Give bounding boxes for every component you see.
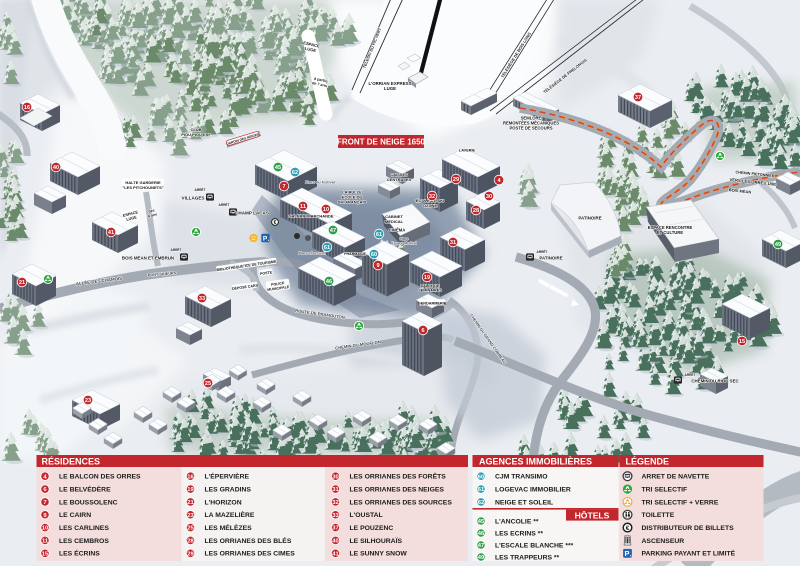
svg-text:LE SUNNY SNOW: LE SUNNY SNOW xyxy=(350,551,408,558)
svg-text:16: 16 xyxy=(24,105,30,111)
svg-text:45: 45 xyxy=(275,165,281,171)
svg-text:47: 47 xyxy=(330,228,336,234)
svg-text:LES ORRIANES DES SOURCES: LES ORRIANES DES SOURCES xyxy=(350,499,453,506)
svg-text:23: 23 xyxy=(85,398,91,404)
svg-text:Place du festival: Place du festival xyxy=(305,180,335,184)
svg-text:LÉGENDE: LÉGENDE xyxy=(626,456,670,466)
svg-text:LAVERIE: LAVERIE xyxy=(459,148,476,152)
svg-text:16: 16 xyxy=(187,474,194,480)
svg-text:SALLE DE: SALLE DE xyxy=(421,284,440,288)
svg-text:HÔTELS: HÔTELS xyxy=(575,509,610,520)
svg-text:60: 60 xyxy=(478,474,484,480)
svg-text:LE SILHOURAÏS: LE SILHOURAÏS xyxy=(350,537,403,545)
svg-text:47: 47 xyxy=(478,543,484,549)
svg-text:61: 61 xyxy=(376,232,382,238)
svg-text:CENTRALES: CENTRALES xyxy=(387,177,412,182)
svg-text:15: 15 xyxy=(739,339,745,345)
svg-text:30: 30 xyxy=(486,194,492,200)
svg-text:LES GRADINS: LES GRADINS xyxy=(205,486,252,493)
svg-text:31: 31 xyxy=(450,240,456,246)
svg-text:ET CULTURE: ET CULTURE xyxy=(657,230,683,235)
svg-text:ASCENSEUR: ASCENSEUR xyxy=(642,538,685,545)
svg-text:LES TRAPPEURS **: LES TRAPPEURS ** xyxy=(495,554,560,561)
svg-text:MÉDICAL: MÉDICAL xyxy=(385,219,404,224)
svg-text:11: 11 xyxy=(42,539,49,545)
svg-text:33: 33 xyxy=(199,296,205,302)
svg-text:"LES PITCHOUNETS": "LES PITCHOUNETS" xyxy=(122,185,163,190)
svg-text:ARRET DE NAVETTE: ARRET DE NAVETTE xyxy=(642,474,710,481)
svg-text:FRONT DE NEIGE 1650: FRONT DE NEIGE 1650 xyxy=(337,138,426,147)
svg-text:46: 46 xyxy=(326,279,332,285)
svg-text:LES MÉLÈZES: LES MÉLÈZES xyxy=(205,523,253,532)
svg-text:SÉMINAIRES: SÉMINAIRES xyxy=(418,288,442,293)
svg-text:CINÉMA: CINÉMA xyxy=(389,227,406,232)
svg-text:31: 31 xyxy=(332,487,339,493)
svg-text:LE BOUSSOLENC: LE BOUSSOLENC xyxy=(59,499,118,506)
svg-text:L'ORRIAN EXPRESS: L'ORRIAN EXPRESS xyxy=(368,81,411,86)
svg-text:49: 49 xyxy=(478,555,485,561)
svg-text:TRI SELECTIF: TRI SELECTIF xyxy=(642,486,688,493)
svg-text:10: 10 xyxy=(323,207,329,213)
svg-text:BOIS MEAN ET EMBRUN: BOIS MEAN ET EMBRUN xyxy=(122,255,174,260)
svg-text:37: 37 xyxy=(635,95,641,101)
svg-text:28: 28 xyxy=(473,208,479,214)
svg-text:ARRÊT: ARRÊT xyxy=(195,187,206,192)
svg-text:LES ECRINS **: LES ECRINS ** xyxy=(495,530,543,537)
svg-text:19: 19 xyxy=(187,487,194,493)
svg-text:€: € xyxy=(274,220,277,226)
svg-text:Place d'accueil: Place d'accueil xyxy=(298,251,325,255)
svg-text:LUGE: LUGE xyxy=(384,86,396,91)
svg-text:LES ORRIANES DES NEIGES: LES ORRIANES DES NEIGES xyxy=(350,486,445,493)
svg-text:L'ÉPERVIÈRE: L'ÉPERVIÈRE xyxy=(205,472,250,481)
svg-text:40: 40 xyxy=(53,165,59,171)
svg-text:AGENCES IMMOBILIÈRES: AGENCES IMMOBILIÈRES xyxy=(479,456,592,466)
svg-text:CHAMP LACAS: CHAMP LACAS xyxy=(235,211,269,216)
svg-text:OZONE: OZONE xyxy=(423,203,438,208)
svg-text:21: 21 xyxy=(19,280,25,286)
svg-text:P: P xyxy=(263,235,268,242)
svg-text:RÉSIDENCES: RÉSIDENCES xyxy=(42,456,101,466)
svg-text:41: 41 xyxy=(108,230,114,236)
svg-text:GALERIE MARCHANDE: GALERIE MARCHANDE xyxy=(288,213,333,218)
svg-text:L'ANCOLIE **: L'ANCOLIE ** xyxy=(495,518,539,525)
svg-text:32: 32 xyxy=(429,194,435,200)
svg-text:32: 32 xyxy=(332,500,338,506)
svg-text:TOILETTE: TOILETTE xyxy=(642,512,675,519)
svg-text:PARKING PAYANT ET LIMITÉ: PARKING PAYANT ET LIMITÉ xyxy=(642,549,736,558)
svg-text:6: 6 xyxy=(421,328,424,334)
svg-text:10: 10 xyxy=(42,526,48,532)
svg-text:15: 15 xyxy=(42,551,49,557)
svg-text:7: 7 xyxy=(43,500,46,506)
svg-text:62: 62 xyxy=(478,500,484,506)
svg-text:33: 33 xyxy=(332,513,339,519)
svg-text:LES CARLINES: LES CARLINES xyxy=(59,525,109,532)
svg-text:46: 46 xyxy=(478,531,485,537)
svg-text:TRI SELECTIF + VERRE: TRI SELECTIF + VERRE xyxy=(642,499,719,506)
svg-text:CHEMIN DU RIOU SEC: CHEMIN DU RIOU SEC xyxy=(691,378,739,383)
svg-text:11: 11 xyxy=(300,204,306,210)
svg-text:LES ORRIANES DES FORÊTS: LES ORRIANES DES FORÊTS xyxy=(350,472,447,481)
svg-text:L'HORIZON: L'HORIZON xyxy=(205,499,242,506)
svg-text:Espace Medical: Espace Medical xyxy=(391,241,416,245)
svg-text:49: 49 xyxy=(775,242,781,248)
svg-text:21: 21 xyxy=(187,500,194,506)
svg-text:€: € xyxy=(626,525,630,532)
svg-text:19: 19 xyxy=(424,275,430,281)
svg-text:23: 23 xyxy=(187,513,194,519)
svg-text:62: 62 xyxy=(292,170,298,176)
svg-text:PATINOIRE: PATINOIRE xyxy=(578,215,601,220)
svg-text:VILLAGES: VILLAGES xyxy=(182,196,205,201)
svg-text:LE POUZENC: LE POUZENC xyxy=(350,525,394,532)
svg-text:NEIGE ET SOLEIL: NEIGE ET SOLEIL xyxy=(495,499,553,506)
svg-text:LA MAZELIÈRE: LA MAZELIÈRE xyxy=(205,510,255,519)
svg-text:GENDARMERIE: GENDARMERIE xyxy=(418,301,447,305)
svg-text:LOGEVAC IMMOBILIER: LOGEVAC IMMOBILIER xyxy=(495,486,571,493)
svg-text:SKI FRANÇAIS: SKI FRANÇAIS xyxy=(338,199,367,204)
svg-text:7: 7 xyxy=(282,184,285,190)
svg-text:POSTE DE SECOURS: POSTE DE SECOURS xyxy=(509,126,552,131)
svg-text:60: 60 xyxy=(371,252,377,258)
svg-text:45: 45 xyxy=(478,519,485,525)
svg-text:29: 29 xyxy=(453,177,459,183)
svg-text:PHARMACIE: PHARMACIE xyxy=(344,252,366,256)
svg-text:L'ESCALE BLANCHE ***: L'ESCALE BLANCHE *** xyxy=(495,542,574,549)
svg-text:CJM TRANSIMO: CJM TRANSIMO xyxy=(495,474,548,481)
svg-text:LE BELVÉDÈRE: LE BELVÉDÈRE xyxy=(59,484,111,493)
svg-text:ARRÊT: ARRÊT xyxy=(171,247,182,252)
svg-text:9: 9 xyxy=(376,263,379,269)
svg-text:LE BALCON DES ORRES: LE BALCON DES ORRES xyxy=(59,474,141,481)
svg-text:LES ORRIANES DES BLÉS: LES ORRIANES DES BLÉS xyxy=(205,536,292,545)
svg-text:25: 25 xyxy=(187,526,194,532)
svg-text:PIOU PIOU ESF: PIOU PIOU ESF xyxy=(181,132,211,137)
svg-text:41: 41 xyxy=(332,551,339,557)
svg-text:LES CEMBROS: LES CEMBROS xyxy=(59,538,109,545)
svg-text:LES ORRIANES DES CIMES: LES ORRIANES DES CIMES xyxy=(205,551,296,558)
svg-text:61: 61 xyxy=(324,245,330,251)
svg-text:LE CAIRN: LE CAIRN xyxy=(59,512,91,519)
svg-text:61: 61 xyxy=(478,487,485,493)
svg-text:LES ÉCRINS: LES ÉCRINS xyxy=(59,549,100,558)
svg-text:37: 37 xyxy=(332,526,338,532)
svg-text:ARRÊT: ARRÊT xyxy=(219,202,230,207)
svg-text:PATINOIRE: PATINOIRE xyxy=(539,255,562,260)
svg-text:25: 25 xyxy=(205,381,211,387)
svg-text:29: 29 xyxy=(187,551,194,557)
svg-text:L'OUSTAL: L'OUSTAL xyxy=(350,512,383,519)
svg-text:30: 30 xyxy=(332,474,338,480)
svg-text:28: 28 xyxy=(187,539,194,545)
svg-text:ARRÊT: ARRÊT xyxy=(685,372,696,377)
svg-text:DISTRIBUTEUR DE BILLETS: DISTRIBUTEUR DE BILLETS xyxy=(642,525,735,532)
svg-text:ARRÊT: ARRÊT xyxy=(537,249,548,254)
svg-text:40: 40 xyxy=(332,539,338,545)
svg-text:P: P xyxy=(625,549,630,558)
